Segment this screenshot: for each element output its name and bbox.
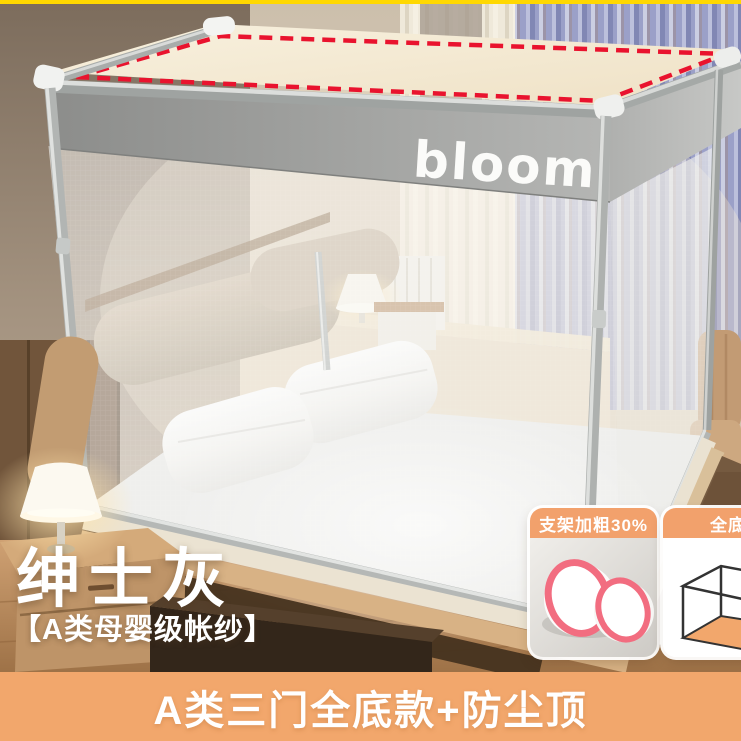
bedroom-photo: bloom <box>0 0 741 672</box>
bloom-logo: bloom <box>412 130 599 199</box>
banner-text: A类三门全底款+防尘顶 <box>153 678 587 736</box>
fabric-grade-subtitle: 【A类母婴级帐纱】 <box>12 606 274 648</box>
bottom-banner: A类三门全底款+防尘顶 <box>0 672 741 741</box>
feature-badge-thick-poles: 支架加粗30% <box>530 508 657 657</box>
product-image: bloom <box>0 0 741 741</box>
thickened-poles-icon <box>530 538 657 657</box>
full-bottom-box-icon <box>663 538 741 657</box>
badge-label: 全底 <box>663 508 741 538</box>
top-yellow-strip <box>0 0 741 4</box>
badge-label: 支架加粗30% <box>530 508 657 538</box>
feature-badge-full-bottom: 全底 <box>663 508 741 657</box>
